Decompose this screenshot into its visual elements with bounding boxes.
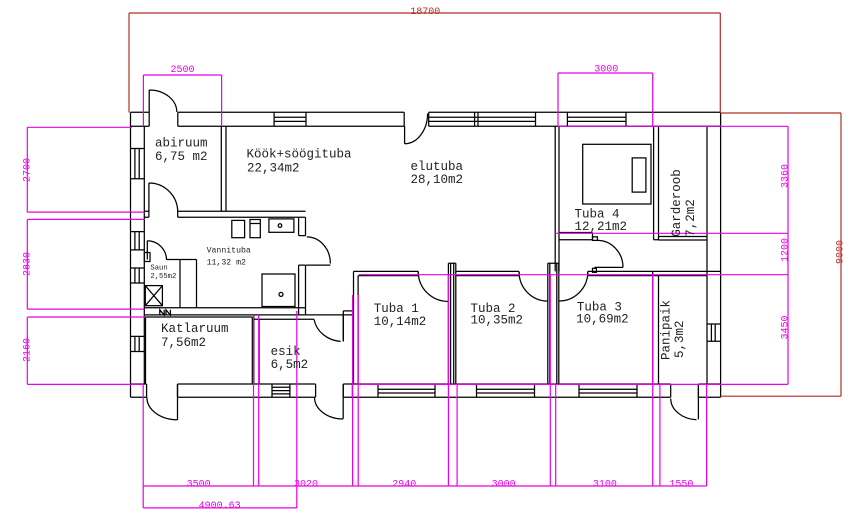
svg-text:2830: 2830 [23, 252, 34, 276]
svg-text:3500: 3500 [187, 479, 211, 490]
svg-text:1200: 1200 [781, 238, 792, 262]
svg-text:5,3m2: 5,3m2 [673, 320, 687, 358]
svg-text:3100: 3100 [593, 479, 617, 490]
svg-text:22,34m2: 22,34m2 [247, 162, 300, 176]
svg-text:18700: 18700 [410, 7, 440, 18]
svg-text:3450: 3450 [781, 315, 792, 339]
svg-text:7,56m2: 7,56m2 [161, 336, 206, 350]
svg-text:11,32 m2: 11,32 m2 [207, 259, 246, 268]
svg-text:12,21m2: 12,21m2 [575, 220, 628, 234]
svg-text:10,14m2: 10,14m2 [374, 315, 427, 329]
svg-text:9000: 9000 [836, 240, 847, 264]
svg-text:6,75 m2: 6,75 m2 [155, 150, 208, 164]
svg-text:Köök+söögituba: Köök+söögituba [247, 148, 353, 162]
svg-text:28,10m2: 28,10m2 [411, 173, 464, 187]
svg-text:2160: 2160 [23, 338, 34, 362]
svg-text:esik: esik [271, 345, 301, 359]
svg-text:10,69m2: 10,69m2 [576, 313, 629, 327]
svg-text:Panipaik: Panipaik [660, 300, 674, 360]
svg-text:10,35m2: 10,35m2 [471, 314, 524, 328]
svg-text:3000: 3000 [492, 479, 516, 490]
svg-text:elutuba: elutuba [411, 160, 464, 174]
svg-text:4900.63: 4900.63 [199, 501, 241, 512]
svg-text:Garderoob: Garderoob [670, 169, 684, 237]
svg-text:7,2m2: 7,2m2 [684, 199, 698, 237]
svg-text:3360: 3360 [781, 164, 792, 188]
svg-text:3020: 3020 [294, 479, 318, 490]
svg-text:1550: 1550 [669, 479, 693, 490]
svg-text:2,55m2: 2,55m2 [150, 273, 176, 281]
svg-text:3000: 3000 [594, 65, 618, 76]
svg-text:Saun: Saun [150, 265, 167, 273]
svg-text:Katlaruum: Katlaruum [161, 322, 229, 336]
svg-text:2940: 2940 [392, 479, 416, 490]
svg-text:Tuba 1: Tuba 1 [374, 302, 419, 316]
svg-text:abiruum: abiruum [155, 137, 208, 151]
svg-text:Vannituba: Vannituba [207, 246, 251, 256]
svg-text:2700: 2700 [23, 158, 34, 182]
svg-text:6,5m2: 6,5m2 [271, 358, 309, 372]
svg-text:2500: 2500 [170, 65, 194, 76]
